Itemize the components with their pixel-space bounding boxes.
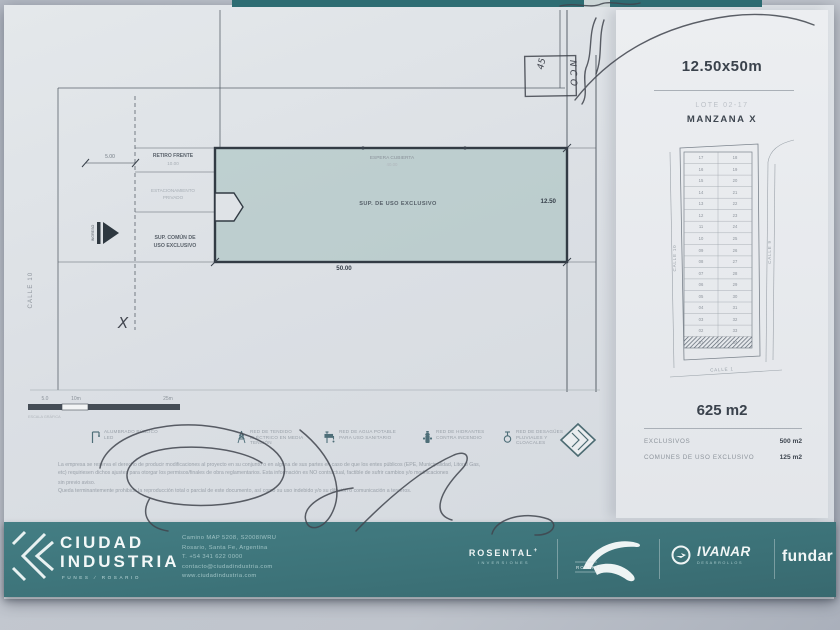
lot-number-cell: 03 bbox=[684, 313, 718, 325]
contact-line: contacto@ciudadindustria.com bbox=[182, 563, 276, 573]
minimap-lot-numbers-right: 1819202122232425262728293031323334 bbox=[718, 152, 752, 348]
covered-wait-dimension: 40.00 bbox=[387, 162, 399, 167]
divider bbox=[659, 539, 660, 579]
area-label: EXCLUSIVOS bbox=[644, 438, 690, 445]
lot-width-dimension: 12.50 bbox=[541, 198, 557, 205]
road-logo-caption: ROSITTI bbox=[576, 565, 601, 570]
fundar-logo: fundar bbox=[782, 548, 833, 566]
rosental-logo: ROSENTAL+ INVERSIONES bbox=[456, 548, 552, 565]
hydrant-icon bbox=[422, 430, 433, 444]
entrance-arrow-icon bbox=[97, 222, 119, 244]
disclaimer-line: sin previo aviso. bbox=[58, 479, 566, 487]
lot-length-dimension: 50.00 bbox=[336, 265, 352, 272]
legend-item: RED DE AGUA POTABLE PARA USO SANITARIO bbox=[324, 429, 399, 444]
divider bbox=[644, 428, 802, 429]
power-tower-icon bbox=[236, 430, 247, 444]
legend-item: ALUMBRADO PÚBLICO LED bbox=[90, 429, 164, 444]
lot-number-cell: 27 bbox=[718, 256, 752, 268]
lot-number-cell: 07 bbox=[684, 267, 718, 279]
ivanar-logo: IVANAR DESARROLLOS bbox=[670, 544, 770, 566]
area-value: 500 m2 bbox=[780, 438, 802, 445]
area-row-common: COMUNES DE USO EXCLUSIVO 125 m2 bbox=[644, 454, 802, 461]
area-row-exclusive: EXCLUSIVOS 500 m2 bbox=[644, 438, 802, 445]
lot-number-cell: 25 bbox=[718, 233, 752, 245]
front-setback-label: RETIRO FRENTE bbox=[153, 153, 194, 159]
area-label: COMUNES DE USO EXCLUSIVO bbox=[644, 454, 754, 461]
disclaimer-line: etc) requiriesen dichos ajustes para oto… bbox=[58, 469, 566, 477]
section-marker bbox=[463, 146, 466, 149]
lot-number-cell: 06 bbox=[684, 279, 718, 291]
rosental-subtitle: INVERSIONES bbox=[456, 560, 552, 565]
drain-icon bbox=[502, 430, 513, 444]
street-label-left: CALLE 10 bbox=[28, 272, 34, 309]
lot-number-cell: 24 bbox=[718, 221, 752, 233]
lot-number-cell: 28 bbox=[718, 267, 752, 279]
block-name: MANZANA X bbox=[616, 114, 828, 125]
parking-label-line1: ESTACIONAMIENTO bbox=[151, 188, 195, 193]
lot-number-cell: 09 bbox=[684, 244, 718, 256]
lot-number-cell: 29 bbox=[718, 279, 752, 291]
area-value: 125 m2 bbox=[780, 454, 802, 461]
ivanar-name: IVANAR bbox=[697, 545, 751, 559]
ciudad-industria-chevron-logo bbox=[11, 530, 55, 590]
brand-line1: CIUDAD bbox=[60, 534, 180, 553]
scale-label-3: 25m bbox=[163, 396, 173, 402]
lot-number-cell: 19 bbox=[718, 164, 752, 176]
contact-line: T. +54 341 622 0000 bbox=[182, 553, 276, 563]
lot-number-cell: 13 bbox=[684, 198, 718, 210]
lot-number-cell: 34 bbox=[718, 337, 752, 349]
divider bbox=[557, 539, 558, 579]
streetlight-icon bbox=[90, 430, 101, 444]
lot-number-cell: 23 bbox=[718, 210, 752, 222]
legend-label: RED DE TENDIDO ELÉCTRICO EN MEDIA TENSIÓ… bbox=[250, 429, 310, 446]
lot-number-cell: 02 bbox=[684, 325, 718, 337]
document-photo: CALLE 10 5.00 RETIRO FRENTE 10.00 ESTACI… bbox=[0, 0, 840, 630]
legend-item: RED DE TENDIDO ELÉCTRICO EN MEDIA TENSIÓ… bbox=[236, 429, 310, 446]
lot-number-cell: 05 bbox=[684, 290, 718, 302]
covered-wait-label: ESPERA CUBIERTA bbox=[370, 155, 415, 161]
lot-number-cell: 22 bbox=[718, 198, 752, 210]
lot-number-cell: 08 bbox=[684, 256, 718, 268]
minimap-street-right: CALLE 9 bbox=[767, 240, 772, 264]
brand-tagline: FUNES ∕ ROSARIO bbox=[62, 575, 141, 580]
parking-label-line2: PRIVADO bbox=[163, 195, 184, 200]
lot-number-cell: 18 bbox=[718, 152, 752, 164]
lot-number-cell: 31 bbox=[718, 302, 752, 314]
lot-number-cell: 30 bbox=[718, 290, 752, 302]
contact-line: www.ciudadindustria.com bbox=[182, 572, 276, 582]
legend-item: RED DE HIDRANTES CONTRA INCENDIO bbox=[422, 429, 496, 444]
ivanar-subtitle: DESARROLLOS bbox=[697, 561, 751, 565]
lot-number-cell: 15 bbox=[684, 175, 718, 187]
lot-number-cell: 17 bbox=[684, 152, 718, 164]
front-setback-dimension: 10.00 bbox=[167, 161, 179, 166]
scale-caption: ESCALA GRÁFICA bbox=[28, 415, 61, 419]
lot-number: LOTE 02-17 bbox=[616, 102, 828, 109]
common-area-label-line1: SUP. COMÚN DE bbox=[154, 234, 196, 241]
scale-label-2: 10m bbox=[71, 396, 81, 402]
rosental-name: ROSENTAL bbox=[469, 548, 534, 558]
legend-item: RED DE DESAGÜES PLUVIALES Y CLOACALES bbox=[502, 429, 576, 446]
ivanar-circle-icon bbox=[670, 544, 692, 566]
road-r-logo: ROSITTI bbox=[567, 531, 655, 589]
entrance-label: INGRESO bbox=[91, 225, 95, 242]
contact-line: Camino MAP 5208, S2008IWRU bbox=[182, 534, 276, 544]
lot-number-cell: 32 bbox=[718, 313, 752, 325]
lot-number-cell: 14 bbox=[684, 187, 718, 199]
minimap-street-bottom: CALLE 1 bbox=[710, 366, 734, 372]
scale-label-1: 5.0 bbox=[42, 396, 49, 402]
legend-label: ALUMBRADO PÚBLICO LED bbox=[104, 429, 164, 440]
scale-bar: 5.0 10m 25m ESCALA GRÁFICA bbox=[28, 396, 180, 419]
common-area-label-line2: USO EXCLUSIVO bbox=[154, 243, 197, 249]
setback-dimension: 5.00 bbox=[105, 154, 115, 160]
lot-number-cell: 20 bbox=[718, 175, 752, 187]
faucet-icon bbox=[324, 430, 336, 444]
section-marker bbox=[361, 146, 364, 149]
lot-number-cell: 21 bbox=[718, 187, 752, 199]
exclusive-area-label: SUP. DE USO EXCLUSIVO bbox=[359, 201, 437, 207]
lot-size-title: 12.50x50m bbox=[616, 58, 828, 75]
legend-label: RED DE AGUA POTABLE PARA USO SANITARIO bbox=[339, 429, 399, 440]
rosental-plus: + bbox=[534, 548, 540, 554]
lot-number-cell: 11 bbox=[684, 221, 718, 233]
legend-label: RED DE DESAGÜES PLUVIALES Y CLOACALES bbox=[516, 429, 576, 446]
lot-number-cell: 10 bbox=[684, 233, 718, 245]
brand-line2: INDUSTRIA bbox=[60, 553, 180, 572]
disclaimer-paragraph: La empresa se reserva el derecho de prod… bbox=[58, 461, 566, 495]
minimap-lot-numbers-left: 1716151413121110090807060504030201 bbox=[684, 152, 718, 348]
lot-number-cell: 26 bbox=[718, 244, 752, 256]
lot-number-cell: 12 bbox=[684, 210, 718, 222]
lot-number-cell: 16 bbox=[684, 164, 718, 176]
disclaimer-line: Queda terminantemente prohibida la repro… bbox=[58, 487, 566, 495]
contact-line: Rosario, Santa Fe, Argentina bbox=[182, 544, 276, 554]
disclaimer-line: La empresa se reserva el derecho de prod… bbox=[58, 461, 566, 469]
divider bbox=[774, 539, 775, 579]
brand-name: CIUDAD INDUSTRIA bbox=[60, 534, 180, 571]
lot-number-cell: 33 bbox=[718, 325, 752, 337]
divider bbox=[654, 90, 794, 91]
legend-label: RED DE HIDRANTES CONTRA INCENDIO bbox=[436, 429, 496, 440]
contact-block: Camino MAP 5208, S2008IWRURosario, Santa… bbox=[182, 534, 276, 582]
total-area-value: 625 m2 bbox=[616, 402, 828, 419]
lot-number-cell: 01 bbox=[684, 337, 718, 349]
footer-brand-band: CIUDAD INDUSTRIA FUNES ∕ ROSARIO Camino … bbox=[4, 522, 836, 597]
minimap-street-left: CALLE 10 bbox=[672, 245, 677, 272]
lot-number-cell: 04 bbox=[684, 302, 718, 314]
